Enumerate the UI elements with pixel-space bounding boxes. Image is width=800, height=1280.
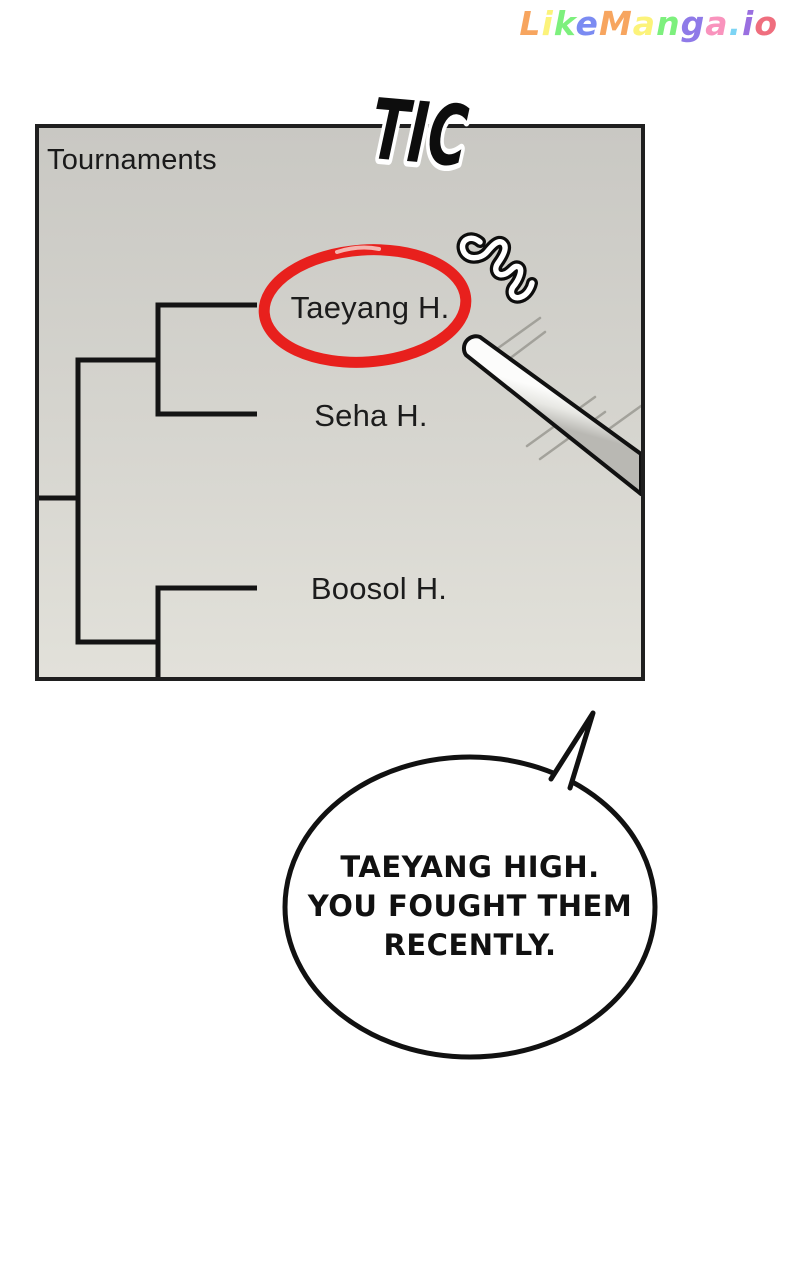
watermark-letter: i [541, 4, 553, 43]
watermark-letter: a [705, 4, 728, 43]
watermark-letter: L [519, 4, 541, 43]
site-watermark: LikeManga.io [519, 4, 778, 43]
watermark-letter: a [633, 4, 656, 43]
team-label-taeyang: Taeyang H. [260, 290, 480, 326]
team-label-seha: Seha H. [261, 398, 481, 434]
pointer-stick [464, 336, 641, 494]
speech-line: TAEYANG HIGH. [285, 848, 655, 887]
sfx-tic: TIC [368, 80, 472, 185]
watermark-letter: g [681, 4, 706, 43]
speech-line: YOU FOUGHT THEM [285, 887, 655, 926]
watermark-letter: o [754, 4, 778, 43]
watermark-letter: . [728, 4, 742, 43]
speech-text: TAEYANG HIGH. YOU FOUGHT THEM RECENTLY. [285, 848, 655, 965]
watermark-letter: i [742, 4, 754, 43]
watermark-letter: M [599, 4, 633, 43]
speech-bubble-tail [551, 713, 593, 788]
speech-line: RECENTLY. [285, 926, 655, 965]
watermark-letter: k [554, 4, 576, 43]
tic-motion-mark [462, 238, 532, 297]
bracket-lines [39, 305, 257, 677]
panel-title: Tournaments [47, 144, 217, 177]
watermark-letter: e [576, 4, 599, 43]
sfx-tic-wrap: TIC [340, 70, 500, 185]
tournament-panel: Tournaments Taeyang H. Seha H. Boosol H. [35, 124, 645, 681]
watermark-letter: n [656, 4, 681, 43]
team-label-boosol: Boosol H. [269, 571, 489, 607]
